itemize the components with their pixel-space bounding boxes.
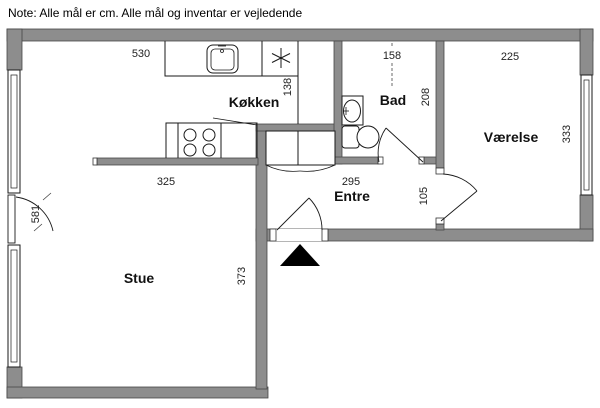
kitchen-sink-icon [207,45,238,73]
bathroom-fixtures [342,96,379,148]
left-wall-top-corner [7,29,22,70]
dim-158: 158 [383,50,401,62]
dim-225: 225 [501,51,519,63]
window-left-upper [8,70,20,193]
room-label-entre: Entre [334,188,370,204]
toilet-icon [342,126,379,148]
window-left-lower [8,245,20,367]
vaerelse-door-jamb-bottom [436,218,444,224]
window-right [581,75,592,195]
doors [8,128,477,243]
stue-entre-wall [256,126,267,389]
bathroom-sink-icon [342,96,363,125]
windows [8,70,592,367]
room-label-koekken: Køkken [229,94,280,110]
dim-208: 208 [420,88,432,106]
floor-plan-drawing: Køkken Bad Værelse Entre Stue 530 138 15… [0,0,600,408]
vaerelse-door-jamb-top [436,168,444,174]
entrance-door-jamb-left [270,229,276,241]
cooktop-star-icon [272,48,290,68]
dim-138: 138 [282,78,294,96]
bad-bottom-wall-left [334,157,378,164]
bad-door [378,128,423,162]
kitchen-opening-line [213,118,257,125]
entrance-door [277,198,322,230]
stue-bottom-wall [7,387,268,398]
dim-105: 105 [418,187,430,205]
kitchen-bottom-wall [97,158,258,165]
dim-530: 530 [132,48,150,60]
vaerelse-door-wall-stub [436,224,444,230]
dim-333: 333 [561,125,573,143]
kitchen-counter-top [165,41,298,76]
room-label-bad: Bad [380,92,406,108]
walls [7,29,593,398]
wardrobe-icon [266,131,335,171]
stove-burners-icon [184,129,215,156]
closet-top-wall [256,124,337,131]
entrance-marker-arrow [280,244,320,266]
dim-325: 325 [157,176,175,188]
dim-373: 373 [236,267,248,285]
top-wall [7,29,593,41]
kitchen-wall-end-cap [93,158,97,165]
floor-plan-page: Note: Alle mål er cm. Alle mål og invent… [0,0,600,408]
room-label-stue: Stue [124,270,155,286]
room-label-vaerelse: Værelse [484,129,539,145]
bad-bottom-wall-jamb [424,157,437,164]
dim-295: 295 [342,176,360,188]
bad-vaerelse-wall [436,41,444,168]
door-jambs [270,229,328,241]
dim-581: 581 [30,205,42,223]
vaerelse-door [441,174,477,221]
entrance-door-jamb-right [322,229,328,241]
right-wall-top [580,29,593,75]
room-labels: Køkken Bad Værelse Entre Stue [124,92,539,286]
